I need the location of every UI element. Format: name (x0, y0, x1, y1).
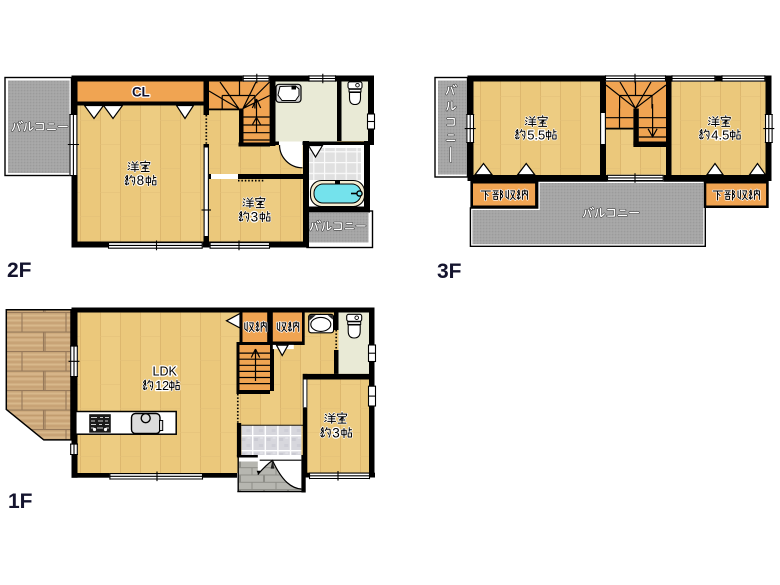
svg-text:3: 3 (251, 210, 259, 225)
svg-text:5.5: 5.5 (527, 127, 545, 142)
svg-text:4.5: 4.5 (711, 127, 729, 142)
svg-text:3: 3 (332, 426, 340, 441)
svg-text:1F: 1F (8, 490, 33, 513)
svg-text:2F: 2F (7, 259, 32, 282)
svg-text:12: 12 (155, 379, 169, 393)
svg-text:8: 8 (137, 173, 145, 188)
svg-text:3F: 3F (437, 260, 462, 283)
svg-text:CL: CL (132, 85, 149, 100)
svg-text:LDK: LDK (153, 365, 178, 379)
